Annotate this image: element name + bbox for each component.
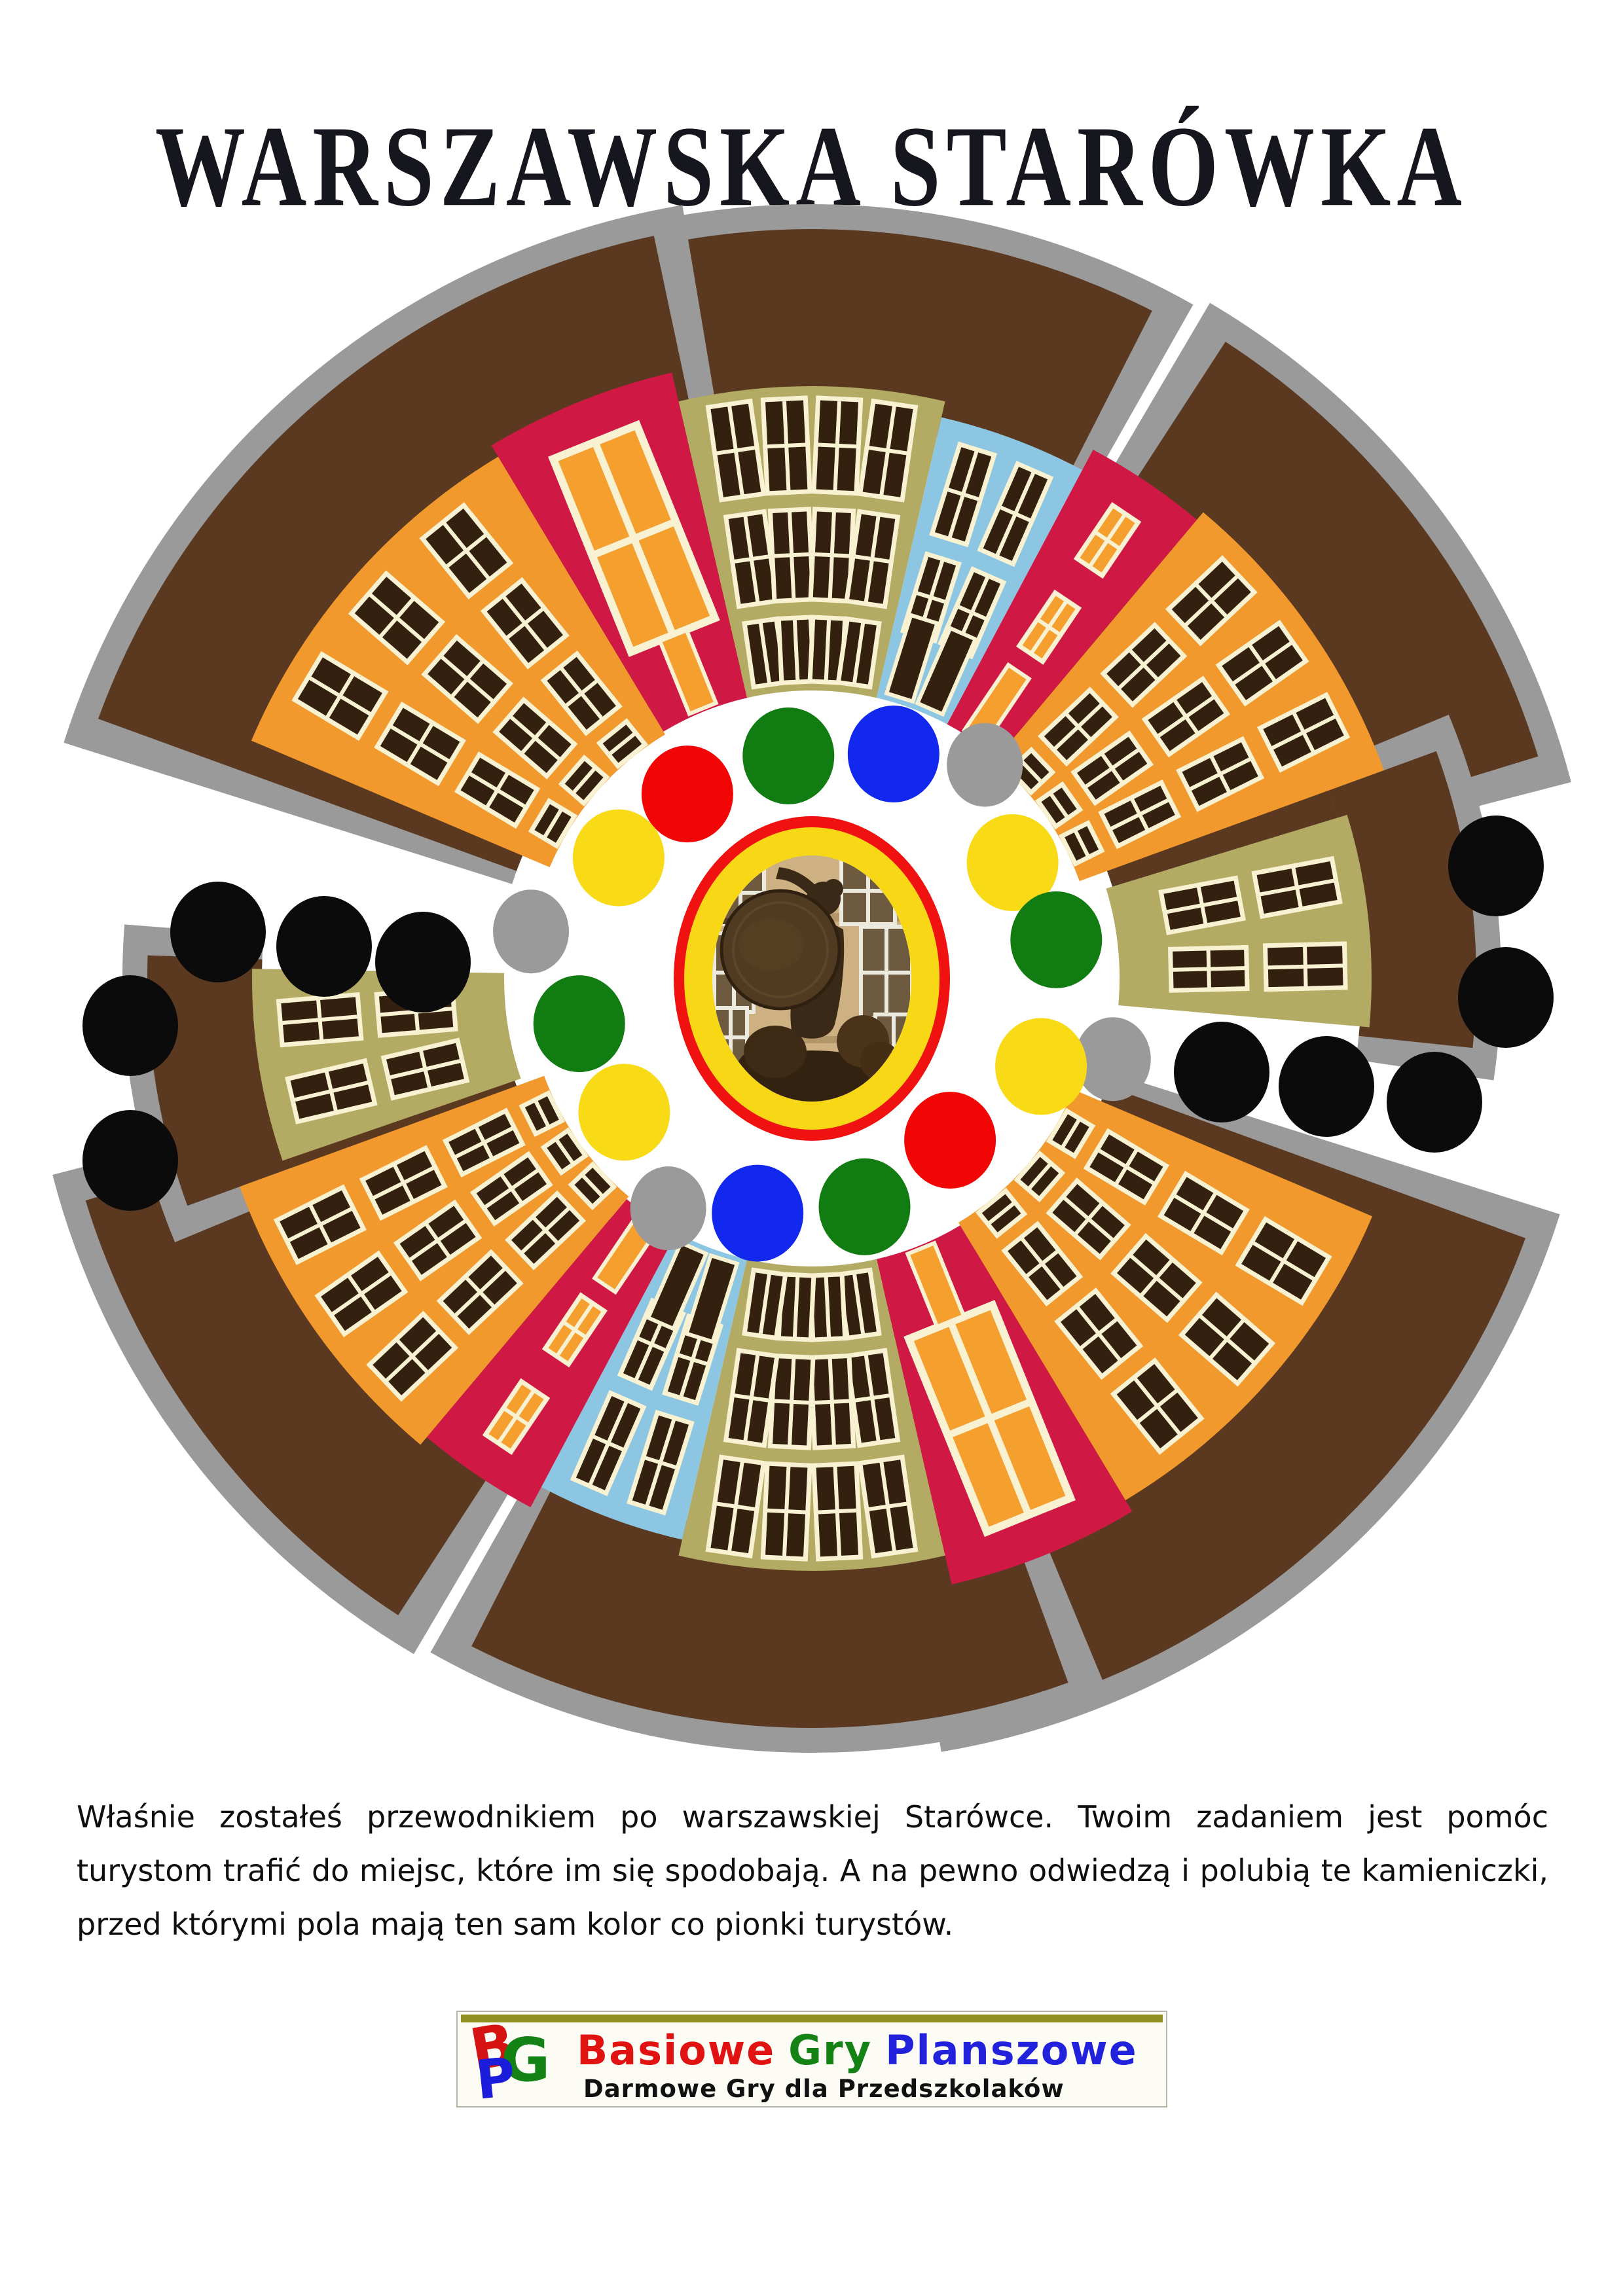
track-space-yellow bbox=[578, 1064, 670, 1160]
monogram-letter-p: P bbox=[473, 2051, 518, 2108]
track-space-black bbox=[1448, 816, 1544, 916]
track-space-black bbox=[82, 975, 178, 1076]
publisher-word-gry: Gry bbox=[788, 2026, 872, 2074]
game-sheet-page: WARSZAWSKA STARÓWKA Właśnie zostałeś prz… bbox=[0, 0, 1623, 2296]
track-space-gray bbox=[630, 1166, 706, 1250]
track-space-yellow bbox=[995, 1018, 1087, 1115]
track-space-black bbox=[375, 912, 471, 1013]
track-space-yellow bbox=[573, 810, 665, 906]
building-window bbox=[768, 507, 816, 603]
game-board bbox=[0, 183, 1623, 1767]
building-window bbox=[761, 395, 812, 495]
photo-window bbox=[859, 925, 914, 1020]
building-window bbox=[808, 1354, 856, 1450]
track-space-green bbox=[819, 1158, 911, 1255]
track-space-black bbox=[1458, 947, 1554, 1048]
track-space-black bbox=[82, 1110, 178, 1211]
building-window bbox=[811, 1461, 863, 1561]
center-medallion bbox=[674, 816, 950, 1141]
track-space-black bbox=[1174, 1022, 1269, 1122]
building-window bbox=[276, 992, 364, 1047]
building-window bbox=[761, 1461, 812, 1561]
track-space-gray bbox=[947, 723, 1023, 807]
publisher-word-basiowe: Basiowe bbox=[577, 2026, 775, 2074]
publisher-tagline: Darmowe Gry dla Przedszkolaków bbox=[583, 2075, 1065, 2103]
track-space-green bbox=[534, 975, 625, 1072]
building-window bbox=[1168, 945, 1250, 993]
track-space-green bbox=[1010, 891, 1102, 988]
track-space-black bbox=[1279, 1036, 1374, 1137]
track-space-red bbox=[642, 745, 733, 842]
building-window bbox=[1263, 941, 1348, 992]
track-space-blue bbox=[848, 706, 939, 802]
rules-text: Właśnie zostałeś przewodnikiem po warsza… bbox=[77, 1790, 1548, 1951]
bgp-monogram-icon: B G P bbox=[463, 2018, 574, 2104]
track-space-black bbox=[276, 896, 372, 997]
building-window bbox=[811, 395, 863, 495]
track-space-blue bbox=[712, 1165, 803, 1262]
publisher-word-planszowe: Planszowe bbox=[885, 2026, 1138, 2074]
track-space-red bbox=[904, 1092, 996, 1189]
publisher-logo-banner: B G P BasioweGryPlanszowe Darmowe Gry dl… bbox=[456, 2011, 1167, 2108]
track-space-black bbox=[1387, 1052, 1482, 1153]
track-space-green bbox=[742, 708, 834, 804]
publisher-name: BasioweGryPlanszowe bbox=[577, 2026, 1151, 2074]
track-space-black bbox=[170, 882, 266, 982]
track-space-gray bbox=[493, 889, 569, 973]
